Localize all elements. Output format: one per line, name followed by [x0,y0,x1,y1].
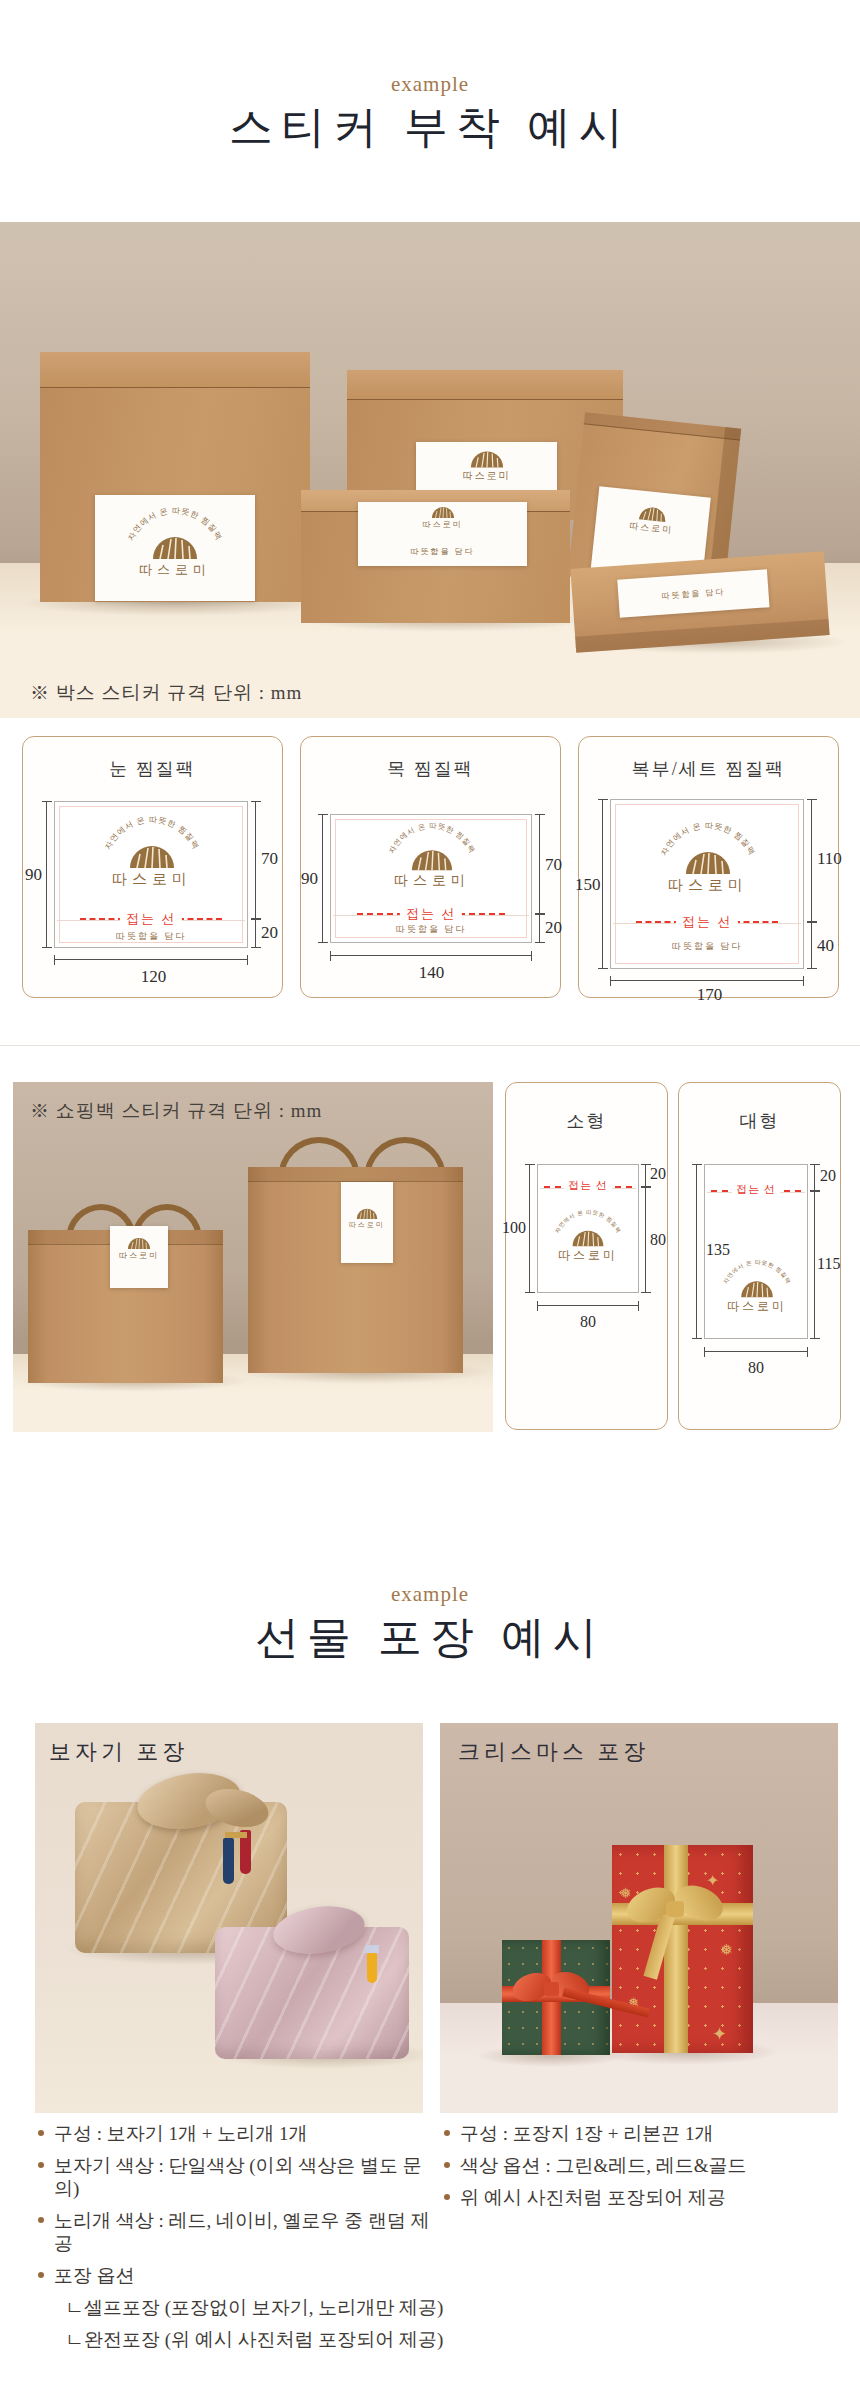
bullet-dot [38,2130,44,2136]
kraft-bag-large: 따스로미 [248,1167,463,1373]
gold-bow-knot [666,1901,684,1917]
svg-text:자연에서 온 따뜻한 찜질팩: 자연에서 온 따뜻한 찜질팩 [103,815,201,851]
dimension-line [602,799,603,969]
dimension-line [704,1351,808,1352]
box-sticker-size-note: ※ 박스 스티커 규격 단위 : mm [30,680,302,706]
brand-logo: 자연에서 온 따뜻한 찜질팩 따스로미 [92,812,212,889]
list-subitem: ㄴ셀프포장 (포장없이 보자기, 노리개만 제공) [37,2296,447,2319]
brand-logo: 자연에서 온 따뜻한 찜질팩 따스로미 [546,1207,630,1264]
kraft-bag-small: 따스로미 [28,1230,223,1383]
bullet-dot [38,2217,44,2223]
dimension-line [610,980,804,981]
christmas-title: 크리스마스 포장 [458,1737,650,1767]
list-item: 위 예시 사진처럼 포장되어 제공 [443,2186,853,2209]
sticker-diagram: 자연에서 온 따뜻한 찜질팩 따스로미 접는 선 따뜻함을 담다 [610,799,804,969]
list-item: 보자기 색상 : 단일색상 (이외 색상은 별도 문의) [37,2154,447,2200]
section1-eyebrow: example [0,72,860,97]
spec-card-bag-small: 소형 접는 선 자연에서 온 따뜻한 찜질팩 따스로미 100 20 80 [505,1082,668,1430]
bag-sticker-size-note: ※ 쇼핑백 스티커 규격 단위 : mm [30,1098,322,1124]
dimension-line [46,801,47,948]
dimension-line [537,1305,639,1306]
box-photo: 자연에서 온 따뜻한 찜질팩 따스로미 따스로미 [0,222,860,718]
brand-logo-mini: 따스로미 [110,1235,168,1261]
sticker-diagram: 자연에서 온 따뜻한 찜질팩 따스로미 접는 선 따뜻함을 담다 [330,814,532,943]
list-item: 구성 : 보자기 1개 + 노리개 1개 [37,2122,447,2145]
spec-card-bag-large: 대형 접는 선 자연에서 온 따뜻한 찜질팩 따스로미 135 20 115 [678,1082,841,1430]
box-sticker: 따뜻함을 담다 [617,569,769,617]
dimension-line [322,814,323,943]
list-item: 포장 옵션 [37,2264,447,2287]
dimension-line [54,959,248,960]
dimension-line [811,799,812,922]
red-bow-knot [544,1982,559,1996]
kraft-box-large: 자연에서 온 따뜻한 찜질팩 따스로미 [40,352,310,602]
green-gift-box [502,1940,610,2055]
bojagi-title: 보자기 포장 [49,1737,189,1767]
dimension-line [696,1164,697,1339]
norigae-bead [365,1945,379,1953]
spec-card-eye-pack: 눈 찜질팩 자연에서 온 따뜻한 찜질팩 따스로미 접는 선 따뜻함을 담다 9… [22,736,283,998]
section1-title: 스티커 부착 예시 [0,98,860,157]
dimension-line [255,801,256,919]
pink-bojagi-gift [215,1927,409,2059]
bag-sticker: 따스로미 [110,1226,168,1288]
svg-text:자연에서 온 따뜻한 찜질팩: 자연에서 온 따뜻한 찜질팩 [126,506,224,542]
bojagi-photo: 보자기 포장 [35,1723,423,2113]
bullet-dot [38,2162,44,2168]
norigae-tassel-navy [223,1838,234,1884]
brand-logo-mini: 따스로미 [341,1206,393,1230]
dimension-line [539,814,540,914]
dimension-line [814,1164,815,1191]
section3-title: 선물 포장 예시 [0,1608,860,1667]
brand-logo: 자연에서 온 따뜻한 찜질팩 따스로미 [377,819,487,890]
dimension-line [539,914,540,943]
spec-card-abdomen-pack: 복부/세트 찜질팩 자연에서 온 따뜻한 찜질팩 따스로미 접는 선 따뜻함을 … [578,736,839,998]
product-detail-page: example 스티커 부착 예시 자연에서 온 따뜻한 찜질팩 따스로미 [0,0,860,2400]
christmas-option-list: 구성 : 포장지 1장 + 리본끈 1개 색상 옵션 : 그린&레드, 레드&골… [443,2122,853,2218]
svg-text:자연에서 온 따뜻한 찜질팩: 자연에서 온 따뜻한 찜질팩 [387,821,478,855]
bag-sticker: 따스로미 [341,1182,393,1263]
norigae-tassel-yellow [367,1953,377,1983]
kraft-box-flat: 따뜻함을 담다 [570,551,829,653]
svg-text:자연에서 온 따뜻한 찜질팩: 자연에서 온 따뜻한 찜질팩 [659,821,757,857]
dimension-line [529,1164,530,1293]
shopping-bag-photo: ※ 쇼핑백 스티커 규격 단위 : mm 따스로미 [13,1082,493,1432]
list-item: 노리개 색상 : 레드, 네이비, 옐로우 중 랜덤 제공 [37,2209,447,2255]
brand-logo-mini: 따스로미 [358,504,527,530]
brand-logo: 자연에서 온 따뜻한 찜질팩 따스로미 [115,503,235,579]
red-gift-box: ❅ ❅ ❅ ✦ ✦ [612,1845,753,2053]
bullet-dot [38,2272,44,2278]
christmas-photo: 크리스마스 포장 ❅ ❅ ❅ ✦ ✦ [440,1723,838,2113]
section3-eyebrow: example [0,1582,860,1607]
list-item: 색상 옵션 : 그린&레드, 레드&골드 [443,2154,853,2177]
bullet-dot [444,2162,450,2168]
sticker-diagram: 자연에서 온 따뜻한 찜질팩 따스로미 접는 선 따뜻함을 담다 [54,801,248,948]
list-item: 구성 : 포장지 1장 + 리본끈 1개 [443,2122,853,2145]
svg-text:자연에서 온 따뜻한 찜질팩: 자연에서 온 따뜻한 찜질팩 [554,1209,622,1234]
spec-card-neck-pack: 목 찜질팩 자연에서 온 따뜻한 찜질팩 따스로미 접는 선 따뜻함을 담다 9… [300,736,561,998]
dimension-line [814,1191,815,1339]
norigae-bead [225,1832,247,1838]
dimension-line [645,1187,646,1293]
brand-logo: 자연에서 온 따뜻한 찜질팩 따스로미 [648,818,768,895]
list-subitem: ㄴ완전포장 (위 예시 사진처럼 포장되어 제공) [37,2328,447,2351]
bullet-dot [444,2130,450,2136]
kraft-box-medium-front: 따스로미 따뜻함을 담다 [301,490,570,623]
brand-logo: 자연에서 온 따뜻한 찜질팩 따스로미 [714,1257,800,1315]
dimension-line [330,955,532,956]
brand-logo-mini: 따스로미 [595,498,710,541]
divider [0,1045,860,1046]
brand-logo-mini: 따스로미 [416,447,557,483]
dimension-line [255,919,256,948]
svg-text:자연에서 온 따뜻한 찜질팩: 자연에서 온 따뜻한 찜질팩 [722,1259,792,1285]
gold-ribbon-vertical [664,1845,688,2053]
bojagi-option-list: 구성 : 보자기 1개 + 노리개 1개 보자기 색상 : 단일색상 (이외 색… [37,2122,447,2360]
sticker-diagram: 접는 선 자연에서 온 따뜻한 찜질팩 따스로미 [537,1164,639,1293]
dimension-line [811,922,812,969]
dimension-line [645,1164,646,1187]
bullet-dot [444,2194,450,2200]
box-sticker: 자연에서 온 따뜻한 찜질팩 따스로미 [95,495,255,601]
box-sticker: 따스로미 따뜻함을 담다 [358,502,527,566]
